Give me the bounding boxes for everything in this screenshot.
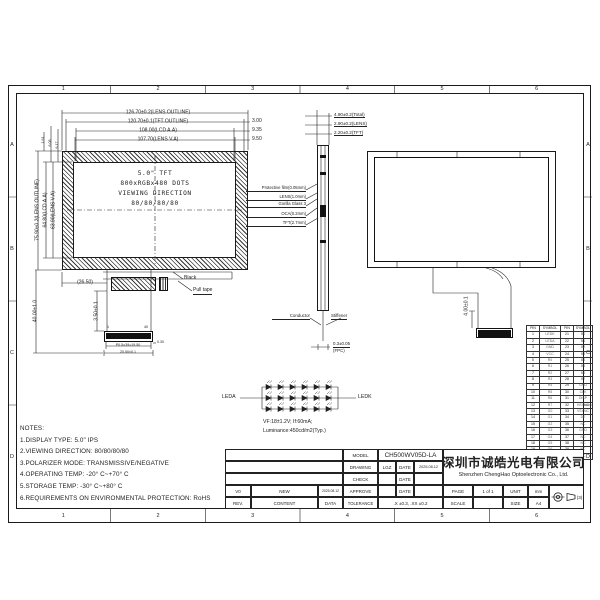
dim-lcd-aa-h: 108.00(LCD A.A) <box>138 128 178 134</box>
frame-row-label: A <box>584 93 592 197</box>
side-view-mark <box>320 172 326 175</box>
dim-offset-9-50: 9.50 <box>252 137 262 143</box>
side-view-mark <box>320 205 326 217</box>
approve-by <box>378 485 396 497</box>
frame-column-label: 2 <box>111 509 206 523</box>
company-block: 深圳市诚皓光电有限公司 Shenzhen ChengHao Optoelectr… <box>443 449 584 485</box>
rev-content: NEW <box>251 485 318 497</box>
rev-header-date: DATA <box>318 497 343 509</box>
frame-column-label: 4 <box>300 509 395 523</box>
company-name-cn: 深圳市诚皓光电有限公司 <box>443 456 584 471</box>
dim-connector-width: 20.50±0.1 <box>119 351 137 355</box>
spec-viewing-direction: VIEWING DIRECTION <box>118 189 192 199</box>
side-view-stack-bar <box>317 145 329 311</box>
page-value: 1 of 1 <box>473 485 503 497</box>
drawing-date-label: DATE <box>396 461 414 473</box>
rev-header-label: REV. <box>225 497 251 509</box>
drawing-by: LGZ <box>378 461 396 473</box>
rev-header-content: CONTENT <box>251 497 318 509</box>
engineering-drawing-sheet: 123456 123456 ABCD ABCD 5.0" TFT 800xRGB… <box>0 0 600 600</box>
frame-column-label: 6 <box>489 85 584 93</box>
dim-connector-thickness: 0.30 <box>157 341 164 345</box>
frame-row-label: D <box>8 405 16 509</box>
approve-label: APPROVE <box>343 485 378 497</box>
check-date <box>414 473 443 485</box>
size-label: SIZE <box>503 497 528 509</box>
spec-size: 5.0" TFT <box>118 169 192 179</box>
frame-column-label: 2 <box>111 85 206 93</box>
stack-lens-label: LENS(1.0mm) <box>246 195 306 201</box>
dim-lens-outline-v: 75.90±0.2(LENS OUTLINE) <box>35 178 41 242</box>
frame-row-label: C <box>8 301 16 405</box>
frame-column-label: 5 <box>395 85 490 93</box>
frame-column-labels-bottom: 123456 <box>16 509 584 523</box>
rev-version: V0 <box>225 485 251 497</box>
dim-lens-va-h: 107.70(LENS V.A) <box>137 137 180 143</box>
dim-total-thickness: 4.90±0.2(Total) <box>334 112 365 118</box>
company-name-en: Shenzhen ChengHao Optoelectronic Co., Lt… <box>459 471 569 479</box>
dim-lcd-aa-v: 64.80(LCD A.A) <box>43 191 49 228</box>
tolerance-label: TOLERANCE <box>343 497 378 509</box>
dim-connector-pitch: P0.5×39=19.50 <box>115 344 142 348</box>
back-connector-body <box>478 330 511 337</box>
check-date-label: DATE <box>396 473 414 485</box>
frame-column-label: 3 <box>205 85 300 93</box>
rev-blank-row <box>225 473 343 485</box>
stack-gorilla-glass-label: Gorilla Glass 3 <box>246 202 306 208</box>
pin1-label: 1 <box>107 326 109 330</box>
fpc-caption: (FPC) <box>333 349 345 354</box>
frame-column-label: 4 <box>300 85 395 93</box>
frame-row-label: A <box>8 93 16 197</box>
frame-column-label: 1 <box>16 509 111 523</box>
frame-column-label: 6 <box>489 509 584 523</box>
frame-column-label: 5 <box>395 509 490 523</box>
frame-column-labels-top: 123456 <box>16 85 584 93</box>
stiffener-label: Stiffener <box>331 314 347 320</box>
dim-offset-3-00: 3.00 <box>252 119 262 125</box>
check-by <box>378 473 396 485</box>
unit-label: UNIT <box>503 485 528 497</box>
dim-fpc-total-length: 40.00±1.0 <box>33 299 39 323</box>
dim-top-offset-1: 1.61 <box>42 136 46 145</box>
led-vf-spec: VF:18±1.2V; If:60mA; <box>263 420 312 426</box>
fpc-bond-area <box>111 277 156 291</box>
spec-resolution: 800xRGBx480 DOTS <box>118 179 192 189</box>
dim-tft-thickness: 2.20±0.2(TFT) <box>334 130 363 136</box>
projection-note: (3) <box>577 495 583 500</box>
note-item: 1.DISPLAY TYPE: 5.0" IPS <box>20 437 225 444</box>
pin40-label: 40 <box>144 326 148 330</box>
dim-back-fpc: 4.00±0.1 <box>464 295 470 316</box>
dim-lens-va-v: 63.90(LENS V.A) <box>51 190 57 230</box>
dim-top-offset-2: 6.08 <box>49 139 53 148</box>
notes-items: 1.DISPLAY TYPE: 5.0" IPS2.VIEWING DIRECT… <box>20 437 225 502</box>
note-item: 4.OPERATING TEMP: -20° C~+70° C <box>20 471 225 478</box>
approve-date-label: DATE <box>396 485 414 497</box>
dim-top-offset-3: 6.17 <box>56 141 60 150</box>
dim-fpc-offset: (26.50) <box>76 280 94 286</box>
approve-date <box>414 485 443 497</box>
led-luminance-spec: Luminance:450cd/m2(Typ.) <box>263 429 326 435</box>
projection-symbol-cell: (3) <box>549 485 584 509</box>
side-view-mark <box>320 155 326 158</box>
unit-value: mm <box>528 485 549 497</box>
model-number: CH500WV05D-LA <box>378 449 443 461</box>
dim-tft-outline-h: 120.70±0.1(TFT OUTLINE) <box>127 119 189 125</box>
scale-value <box>473 497 503 509</box>
pin-assignment-table: PINSYMBOLPINSYMBOL1LEDK21B02LEDA22B13GND… <box>526 325 593 460</box>
dim-lens-thickness: 2.90±0.2(LENS) <box>334 121 367 127</box>
conductor-label: Conductor <box>272 314 310 320</box>
check-label: CHECK <box>343 473 378 485</box>
model-label: MODEL <box>343 449 378 461</box>
fpc-stiffener-stripes <box>159 277 168 291</box>
notes-block: NOTES: 1.DISPLAY TYPE: 5.0" IPS2.VIEWING… <box>20 425 225 506</box>
fpc-connector-body <box>106 333 151 339</box>
frame-column-label: 1 <box>16 85 111 93</box>
panel-spec-text: 5.0" TFT 800xRGBx480 DOTS VIEWING DIRECT… <box>118 169 192 209</box>
dim-offset-9-35: 9.35 <box>252 128 262 134</box>
third-angle-projection-icon <box>551 489 577 505</box>
drawing-label: DRAWING <box>343 461 378 473</box>
drawing-date: 2025.08.12 <box>414 461 443 473</box>
tolerance-value: .X ±0.3, .XX ±0.2 <box>378 497 443 509</box>
title-block: V0 NEW 2025.08.12 REV. CONTENT DATA MODE… <box>225 449 584 509</box>
page-label: PAGE <box>443 485 473 497</box>
pin-table: PINSYMBOLPINSYMBOL1LEDK21B02LEDA22B13GND… <box>526 325 593 460</box>
dim-fpc-length: 3.50±0.1 <box>94 300 100 321</box>
rev-blank-row <box>225 461 343 473</box>
dim-lens-outline-h: 126.70±0.2(LENS OUTLINE) <box>125 110 191 116</box>
note-item: 5.STORAGE TEMP: -30° C~+80° C <box>20 483 225 490</box>
size-value: A4 <box>528 497 549 509</box>
black-bezel-label: Black <box>184 276 196 282</box>
side-view-mark <box>320 240 326 243</box>
rev-blank-row <box>225 449 343 461</box>
frame-row-label: B <box>584 197 592 301</box>
back-view-inner-outline <box>374 157 549 262</box>
dim-fpc-thickness: 0.3±0.05 <box>333 342 350 348</box>
stack-protective-film-label: Protective film(0.05mm) <box>246 186 306 192</box>
scale-label: SCALE <box>443 497 473 509</box>
note-item: 2.VIEWING DIRECTION: 80/80/80/80 <box>20 448 225 455</box>
rev-date: 2025.08.12 <box>318 485 343 497</box>
note-item: 6.REQUIREMENTS ON ENVIRONMENTAL PROTECTI… <box>20 495 225 502</box>
stack-oca-label: OCA(0.2mm) <box>246 212 306 218</box>
frame-row-labels-left: ABCD <box>8 93 16 509</box>
frame-row-label: B <box>8 197 16 301</box>
spec-angles: 80/80/80/80 <box>118 199 192 209</box>
pull-tape-label: Pull tape <box>193 288 212 295</box>
stack-tft-label: TFT(2.7mm) <box>246 221 306 227</box>
notes-title: NOTES: <box>20 425 225 432</box>
leda-label: LEDA <box>222 395 236 401</box>
ledk-label: LEDK <box>358 395 372 401</box>
frame-column-label: 3 <box>205 509 300 523</box>
note-item: 3.POLARIZER MODE: TRANSMISSIVE/NEGATIVE <box>20 460 225 467</box>
